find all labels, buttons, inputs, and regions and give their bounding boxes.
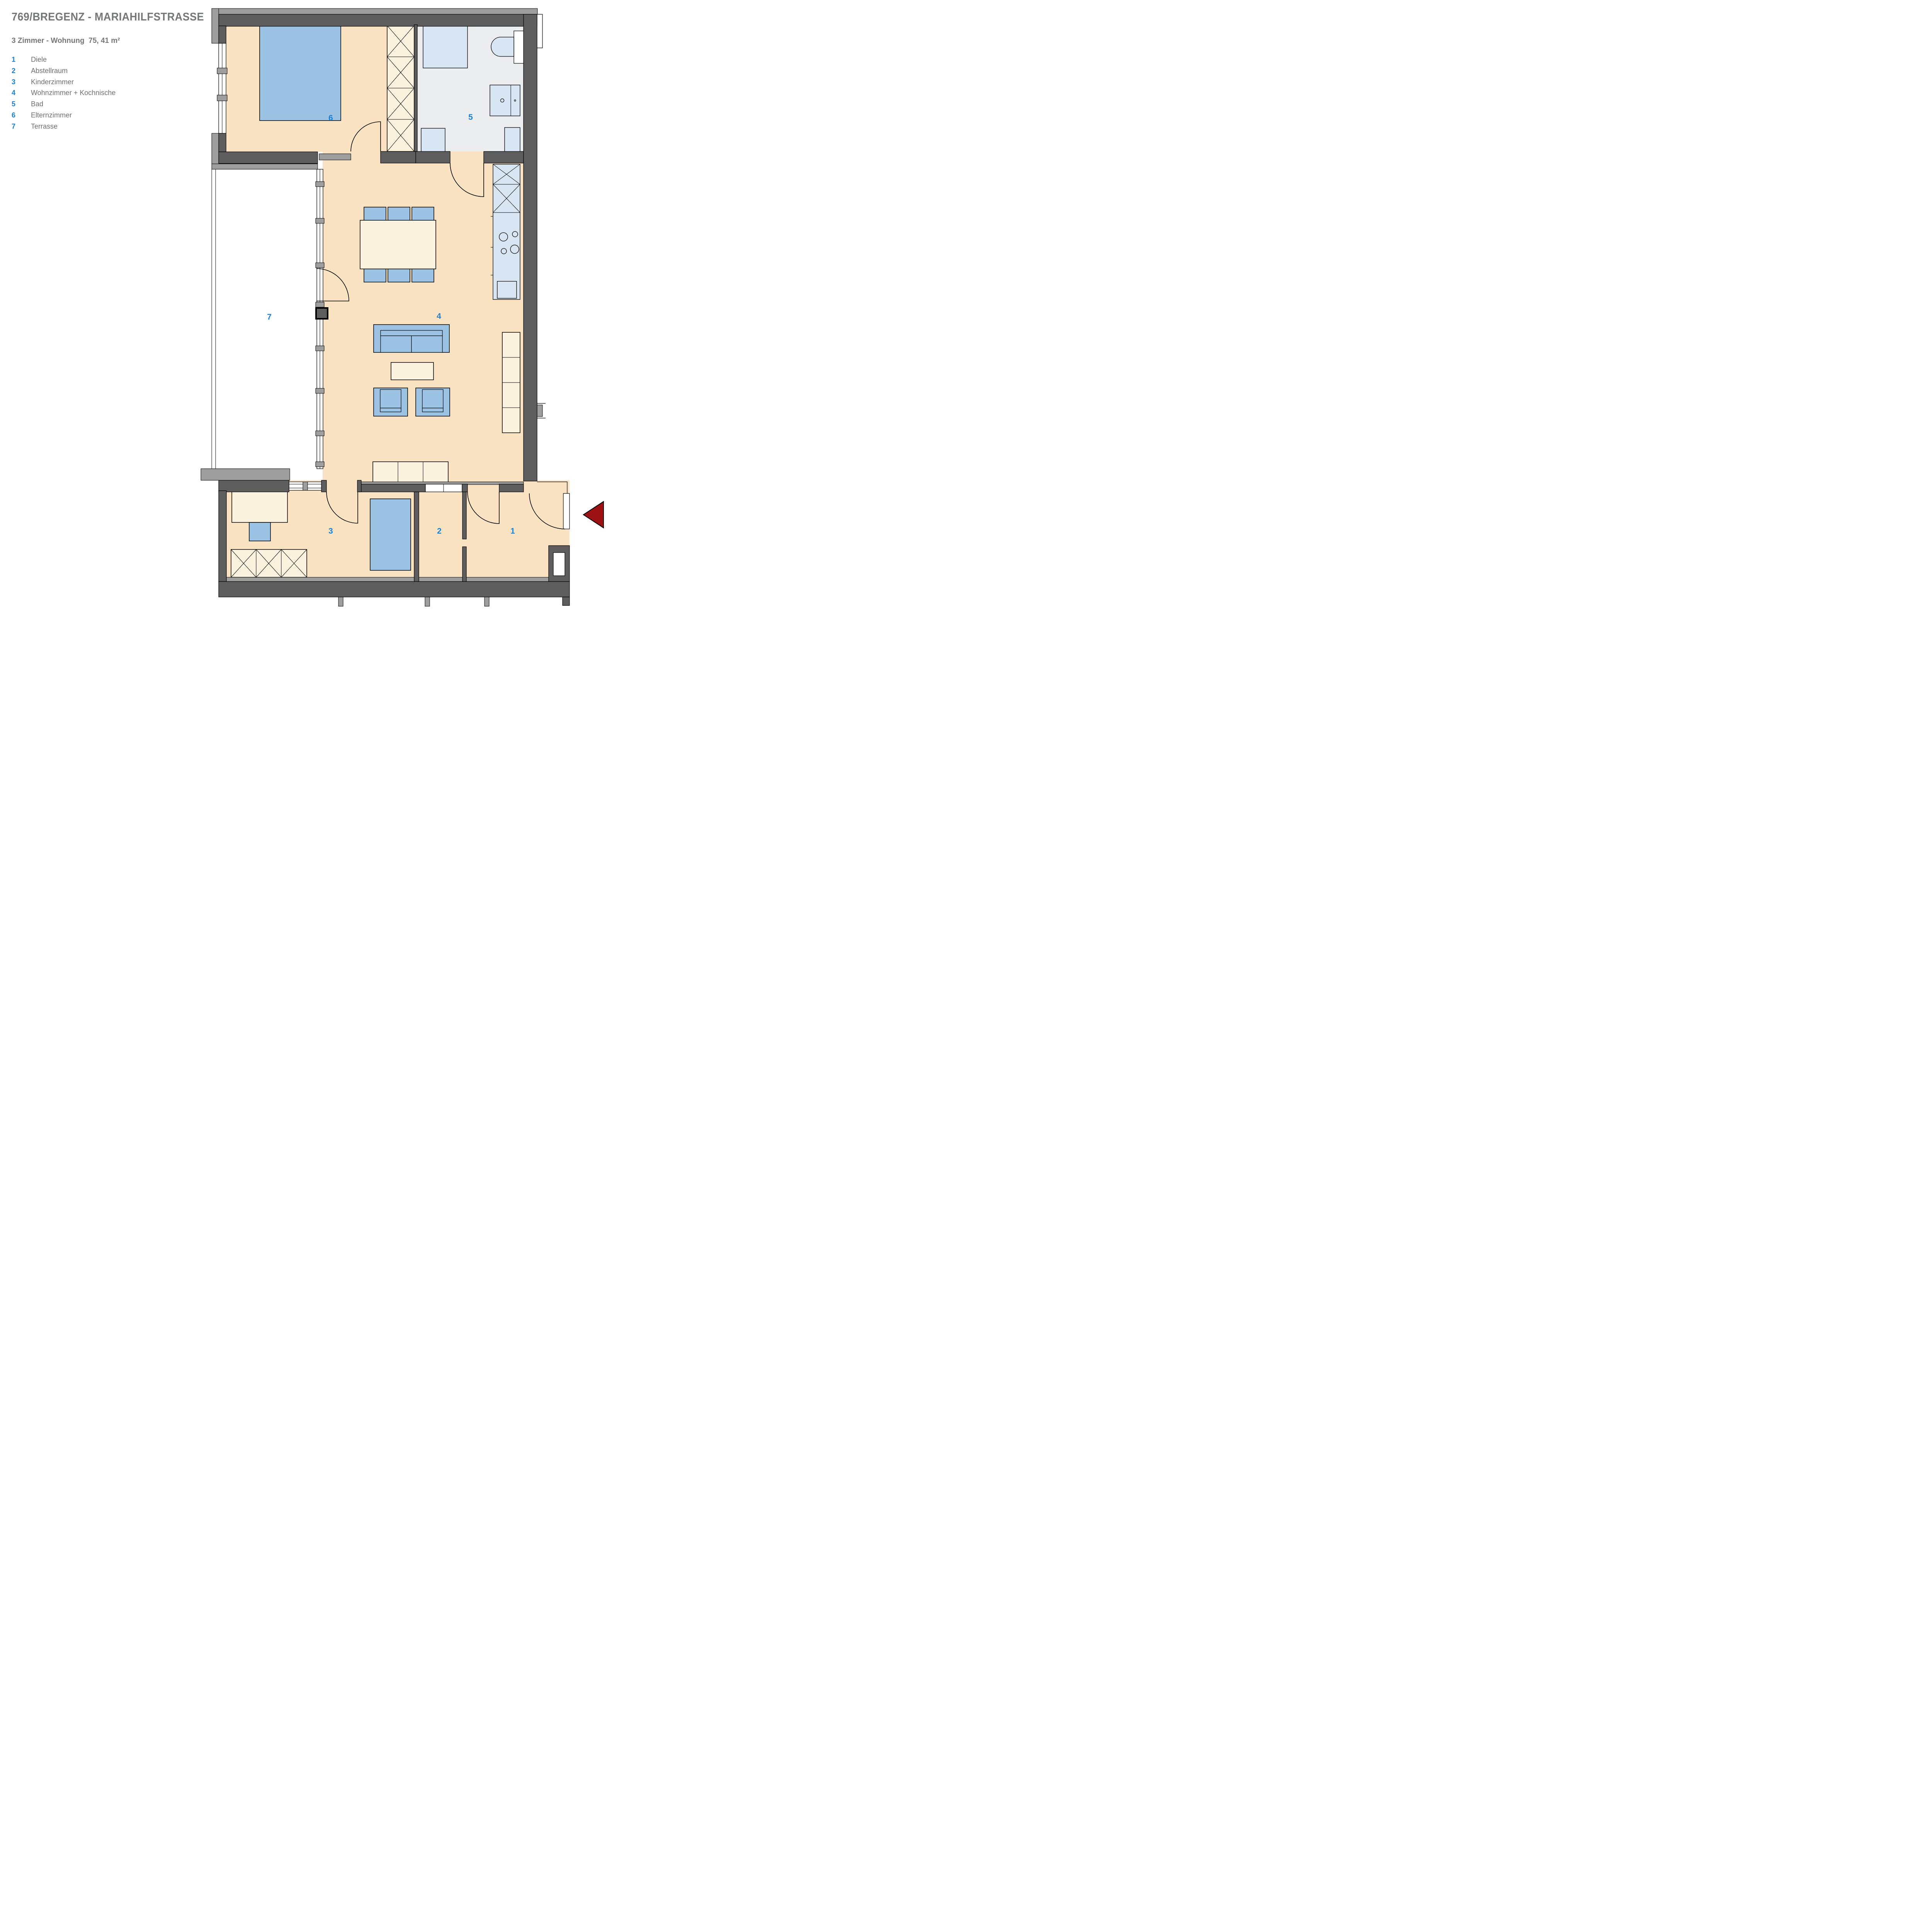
legend-number: 1 [12,54,31,65]
shower [423,26,468,68]
kitchen-counter [491,164,520,299]
legend-label: Bad [31,99,43,110]
floor-plan-page: 1 2 3 4 5 6 7 769/BREGENZ - MARIAHILFSTR… [0,0,606,607]
coffee-table [391,362,434,380]
desk-chair [249,522,270,541]
floor-terrasse [212,169,317,469]
room-label-7: 7 [267,313,272,321]
legend-item-diele: 1 Diele [12,54,174,65]
bed-kinderzimmer [370,499,411,570]
floor-door-gap-6 [351,149,381,164]
legend-item-wohnzimmer: 4 Wohnzimmer + Kochnische [12,87,174,99]
sideboard-bottom [373,462,448,484]
legend-number: 7 [12,121,31,132]
room-label-1: 1 [510,527,515,536]
room-label-6: 6 [328,114,333,122]
wall-niche-entry [553,553,565,576]
dining-set [360,207,436,282]
legend-item-elternzimmer: 6 Elternzimmer [12,110,174,121]
legend-label: Terrasse [31,121,58,132]
legend-number: 4 [12,87,31,99]
legend-label: Abstellraum [31,65,68,77]
legend-number: 6 [12,110,31,121]
dining-table [360,220,436,269]
sideboard-right [502,332,520,433]
entry-door-opening [563,493,570,529]
window-elternzimmer [217,43,227,133]
legend-number: 2 [12,65,31,77]
legend-label: Diele [31,54,47,65]
desk [232,492,287,522]
door-opening-abstellraum [425,484,462,492]
page-title: 769/BREGENZ - MARIAHILFSTRASSE [12,11,199,24]
legend-label: Kinderzimmer [31,77,74,88]
armchair-right [416,388,450,416]
legend: 1 Diele 2 Abstellraum 3 Kinderzimmer 4 W… [12,54,174,132]
legend-label: Wohnzimmer + Kochnische [31,87,116,99]
header: 769/BREGENZ - MARIAHILFSTRASSE 3 Zimmer … [12,11,213,45]
entrance-arrow-icon [583,502,604,528]
toilet [491,37,514,56]
room-label-2: 2 [437,527,442,536]
kitchen-sink [497,281,517,298]
legend-number: 3 [12,77,31,88]
page-subtitle: 3 Zimmer - Wohnung 75, 41 m² [12,37,213,45]
sofa [374,325,449,352]
wall-niche-bad [514,31,524,63]
room-label-3: 3 [328,527,333,536]
bath-cabinet [421,128,445,152]
legend-item-terrasse: 7 Terrasse [12,121,174,132]
legend-item-kinderzimmer: 3 Kinderzimmer [12,77,174,88]
wardrobe-kinderzimmer [231,549,307,577]
legend-label: Elternzimmer [31,110,72,121]
wardrobe-elternzimmer [387,26,414,151]
legend-item-bad: 5 Bad [12,99,174,110]
washing-machine [490,85,520,116]
bed-elternzimmer [260,25,341,121]
chimney [316,308,328,319]
room-label-4: 4 [437,312,441,321]
legend-number: 5 [12,99,31,110]
armchair-left [374,388,408,416]
room-label-5: 5 [468,113,473,122]
legend-item-abstellraum: 2 Abstellraum [12,65,174,77]
window-kinderzimmer [289,482,321,490]
